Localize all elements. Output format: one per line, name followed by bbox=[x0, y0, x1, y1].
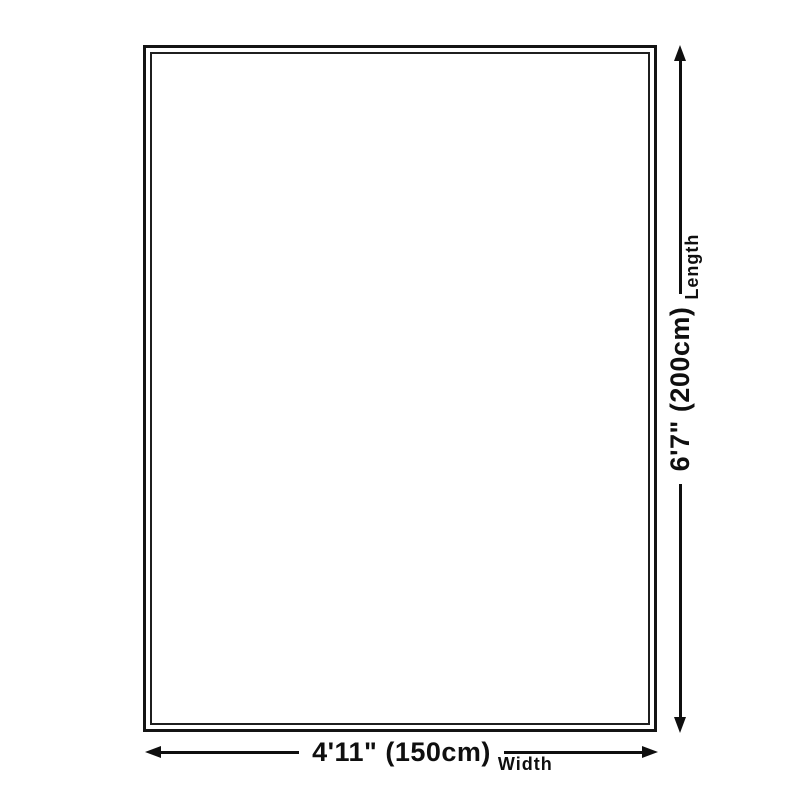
arrow-up-icon bbox=[674, 45, 686, 61]
size-diagram: 6'7" (200cm) Length 4'11" (150cm) Width bbox=[0, 0, 800, 800]
length-dimension-line bbox=[679, 484, 682, 717]
width-dimension-line bbox=[161, 751, 299, 754]
arrow-left-icon bbox=[145, 746, 161, 758]
width-dimension-label: 4'11" (150cm) Width bbox=[312, 739, 491, 766]
arrow-down-icon bbox=[674, 717, 686, 733]
length-value: 6'7" (200cm) bbox=[665, 307, 695, 472]
arrow-right-icon bbox=[642, 746, 658, 758]
length-dimension-label: 6'7" (200cm) Length bbox=[667, 307, 694, 472]
product-inner-outline bbox=[150, 52, 650, 725]
product-outline bbox=[143, 45, 657, 732]
width-label: Width bbox=[498, 755, 553, 773]
width-value: 4'11" (150cm) bbox=[312, 737, 491, 767]
length-label: Length bbox=[683, 234, 701, 300]
length-dimension: 6'7" (200cm) Length bbox=[662, 45, 698, 733]
width-dimension: 4'11" (150cm) Width bbox=[145, 734, 658, 770]
